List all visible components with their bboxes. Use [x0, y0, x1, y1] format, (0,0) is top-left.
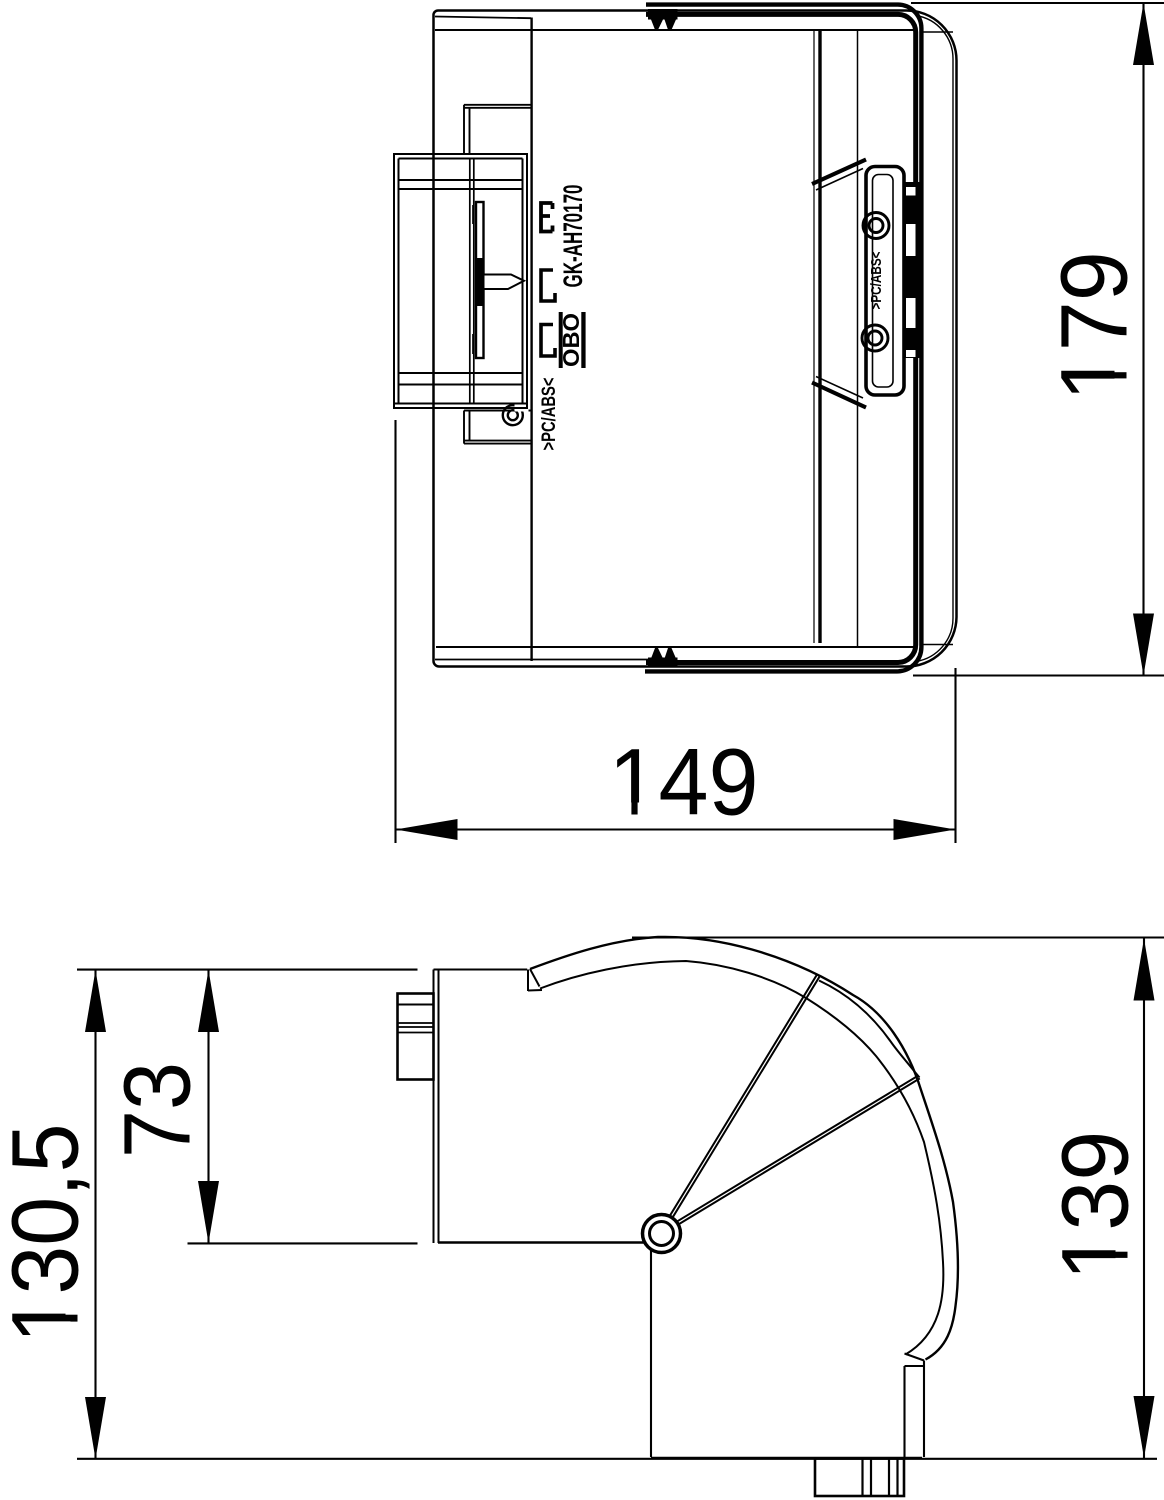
- svg-text:149: 149: [609, 730, 759, 836]
- svg-text:>PC/ABS<: >PC/ABS<: [868, 251, 885, 309]
- svg-text:139: 139: [1043, 1131, 1149, 1281]
- svg-text:73: 73: [105, 1062, 211, 1158]
- svg-text:179: 179: [1042, 251, 1148, 401]
- svg-text:GK-AH70170: GK-AH70170: [558, 185, 588, 288]
- svg-text:130,5: 130,5: [0, 1124, 99, 1344]
- svg-text:>PC/ABS<: >PC/ABS<: [539, 378, 560, 451]
